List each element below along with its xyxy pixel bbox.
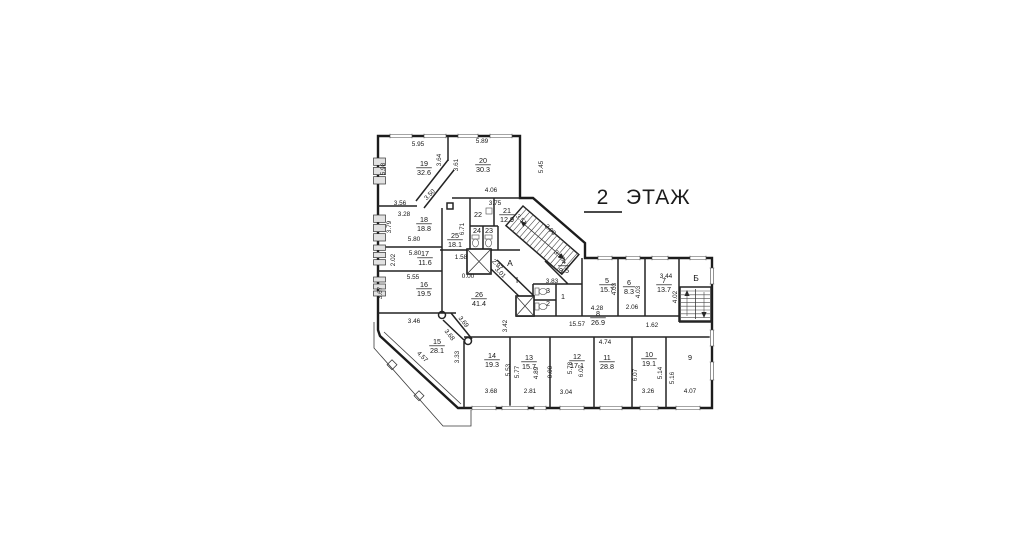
room-number: 11 (603, 353, 610, 362)
dimension-label: 4.03 (635, 285, 642, 298)
dimension-label: 4.06 (485, 187, 498, 194)
room-number: 12 (573, 352, 581, 361)
dimension-label: 3.61 (453, 158, 460, 171)
dimension-label: 6.71 (459, 222, 466, 235)
room-number: 14 (488, 351, 496, 360)
dimension-label: 3.67 (377, 286, 384, 299)
room-number: 5 (605, 276, 609, 285)
room-number: 6 (627, 278, 631, 287)
dimension-label: 5.80 (409, 250, 422, 257)
room-number: 15 (433, 337, 441, 346)
dimension-label: 3.44 (660, 273, 673, 280)
dimension-label: 3.26 (642, 388, 655, 395)
dimension-label: 15.57 (569, 321, 585, 328)
toilet-icon (485, 235, 492, 247)
room-number: 22 (474, 210, 482, 219)
dimension-label: 5.53 (505, 363, 512, 376)
floor-title-word: ЭТАЖ (626, 186, 691, 209)
room-number: 16 (420, 280, 428, 289)
balcony-window (374, 224, 386, 231)
dimension-label: 3.56 (394, 200, 407, 207)
floor-plan-svg: 1932.62030.32518.1222112.924231818.81711… (0, 0, 1023, 541)
room-number: 2 (546, 299, 550, 308)
stair-letter-labels: АБI (507, 258, 699, 285)
room-number: 10 (645, 350, 653, 359)
room-area: 18.1 (448, 240, 462, 249)
stair-letter: А (507, 258, 513, 268)
dimension-label: 4.89 (533, 366, 540, 379)
dimension-label: 4.03 (611, 282, 618, 295)
staircases (506, 206, 711, 321)
balcony-window (374, 277, 386, 282)
room-number: 23 (485, 226, 493, 235)
dimension-label: 3.33 (454, 350, 461, 363)
room-area: 9.5 (559, 266, 569, 275)
balcony-window (374, 234, 386, 241)
dimension-label: 1.62 (646, 322, 659, 329)
room-area: 32.6 (417, 168, 431, 177)
floor-plan-page: 1932.62030.32518.1222112.924231818.81711… (0, 0, 1023, 541)
dimension-label: 5.98 (380, 162, 387, 175)
dimension-label: 6.07 (632, 368, 639, 381)
dimension-label: 5.77 (514, 365, 521, 378)
dimension-label: 2.06 (626, 304, 639, 311)
toilet-icon (472, 235, 479, 247)
dimension-label: 4.02 (672, 290, 679, 303)
dimension-label: 4.28 (591, 305, 604, 312)
room-area: 19.5 (417, 289, 431, 298)
dimension-label: 3.79 (386, 220, 393, 233)
dimension-label: 5.14 (657, 366, 664, 379)
room-number: 26 (475, 290, 483, 299)
dimension-label: 2.02 (390, 253, 397, 266)
right-staircase (680, 287, 711, 321)
elevator-right-icon (516, 296, 534, 316)
room-number: 3 (546, 286, 550, 295)
dimension-label: 3.75 (489, 200, 502, 207)
dimension-label: 5.78 (567, 361, 574, 374)
dimension-label: 5.80 (408, 236, 421, 243)
dimension-label: 3.51 (514, 213, 528, 227)
dimension-label: 1.58 (455, 254, 468, 261)
dimension-label: 3.68 (485, 388, 498, 395)
dimension-label: 3.04 (560, 389, 573, 396)
floor-number: 2 (584, 186, 622, 213)
room-area: 28.1 (430, 346, 444, 355)
balcony-window (374, 215, 386, 222)
dimension-label: 5.45 (538, 160, 545, 173)
dimension-label: 4.57 (415, 350, 429, 364)
dimension-label: 3.64 (436, 153, 443, 166)
room-area: 26.9 (591, 318, 605, 327)
room-area: 30.3 (476, 165, 490, 174)
room-area: 19.1 (642, 359, 656, 368)
room-number: 24 (473, 226, 481, 235)
dimension-label: 4.07 (684, 388, 697, 395)
balcony-window (374, 260, 386, 265)
dimension-label: 5.95 (412, 141, 425, 148)
room-area: 8.3 (624, 287, 634, 296)
room-area: 28.8 (600, 362, 614, 371)
room-number: 18 (420, 215, 428, 224)
stair-letter: Б (693, 273, 699, 283)
room-number: 1 (561, 292, 565, 301)
dimension-label: 2.81 (524, 388, 537, 395)
dimension-label: 5.16 (669, 371, 676, 384)
room-area: 18.8 (417, 224, 431, 233)
dimension-label: 3.46 (408, 318, 421, 325)
dimension-label: 3.83 (546, 278, 559, 285)
floor-title: 2ЭТАЖ (584, 186, 691, 213)
room-number: 17 (421, 249, 429, 258)
room-number: 13 (525, 353, 533, 362)
room-number: 9 (688, 353, 692, 362)
room-number: 21 (503, 206, 511, 215)
dimension-label: 0.00 (547, 365, 554, 378)
balcony-window (374, 245, 386, 250)
room-number: 25 (451, 231, 459, 240)
room-area: 19.3 (485, 360, 499, 369)
dimension-label: 3.42 (502, 319, 509, 332)
dimension-label: 5.89 (476, 138, 489, 145)
elevator-left-icon (467, 249, 491, 274)
balcony-window (374, 177, 386, 184)
balcony-window (374, 252, 386, 257)
dimension-label: 6.07 (578, 364, 585, 377)
room-area: 11.6 (418, 258, 431, 267)
dimension-label: 0.00 (462, 273, 475, 280)
stair-letter: I (516, 275, 518, 285)
room-area: 13.7 (657, 285, 671, 294)
room-number: 20 (479, 156, 487, 165)
room-area: 41.4 (472, 299, 486, 308)
dimension-label: 4.74 (599, 339, 612, 346)
sink-icon (486, 208, 492, 214)
room-number: 19 (420, 159, 428, 168)
room-area: 12.9 (500, 215, 514, 224)
dimension-label: 5.55 (407, 274, 420, 281)
dimension-label: 3.28 (398, 211, 411, 218)
